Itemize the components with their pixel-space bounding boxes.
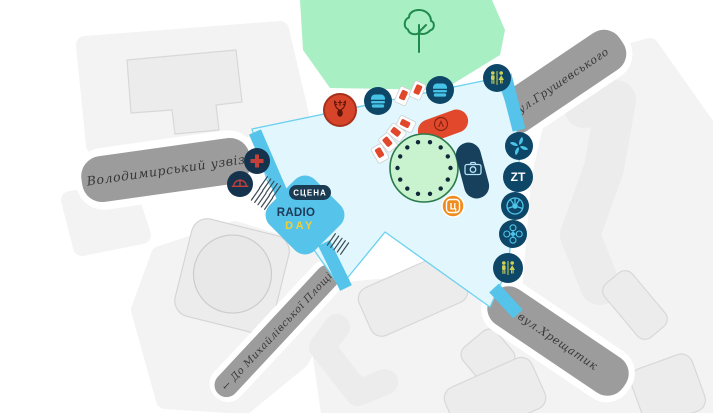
pinwheel-marker [505,132,533,160]
stage-badge-label: СЦЕНА [293,189,327,198]
stage-logo-radio: RADIO [277,207,316,219]
citrus-letter: Ц [450,202,457,212]
toilets-marker [493,253,523,283]
food-court-marker [426,76,454,104]
drone-marker [499,220,527,248]
food-burger-icon [433,83,447,96]
medical-aid-marker [244,148,270,174]
event-map: Володимирський узвіз вул.Грушевського ву… [0,0,713,413]
citrus-logo: Ц [442,195,464,217]
stage-logo-day: DAY [285,220,315,232]
fire-safety-marker [227,171,253,197]
zt-logo: ZT [511,170,526,184]
food-court-marker [364,87,392,115]
soccer-marker [501,192,529,220]
zt-marker: ZT [503,162,533,192]
fountain-circle [390,134,458,202]
stag-brand-marker [324,94,356,126]
toilets-marker [483,64,511,92]
food-burger-icon [371,94,385,107]
